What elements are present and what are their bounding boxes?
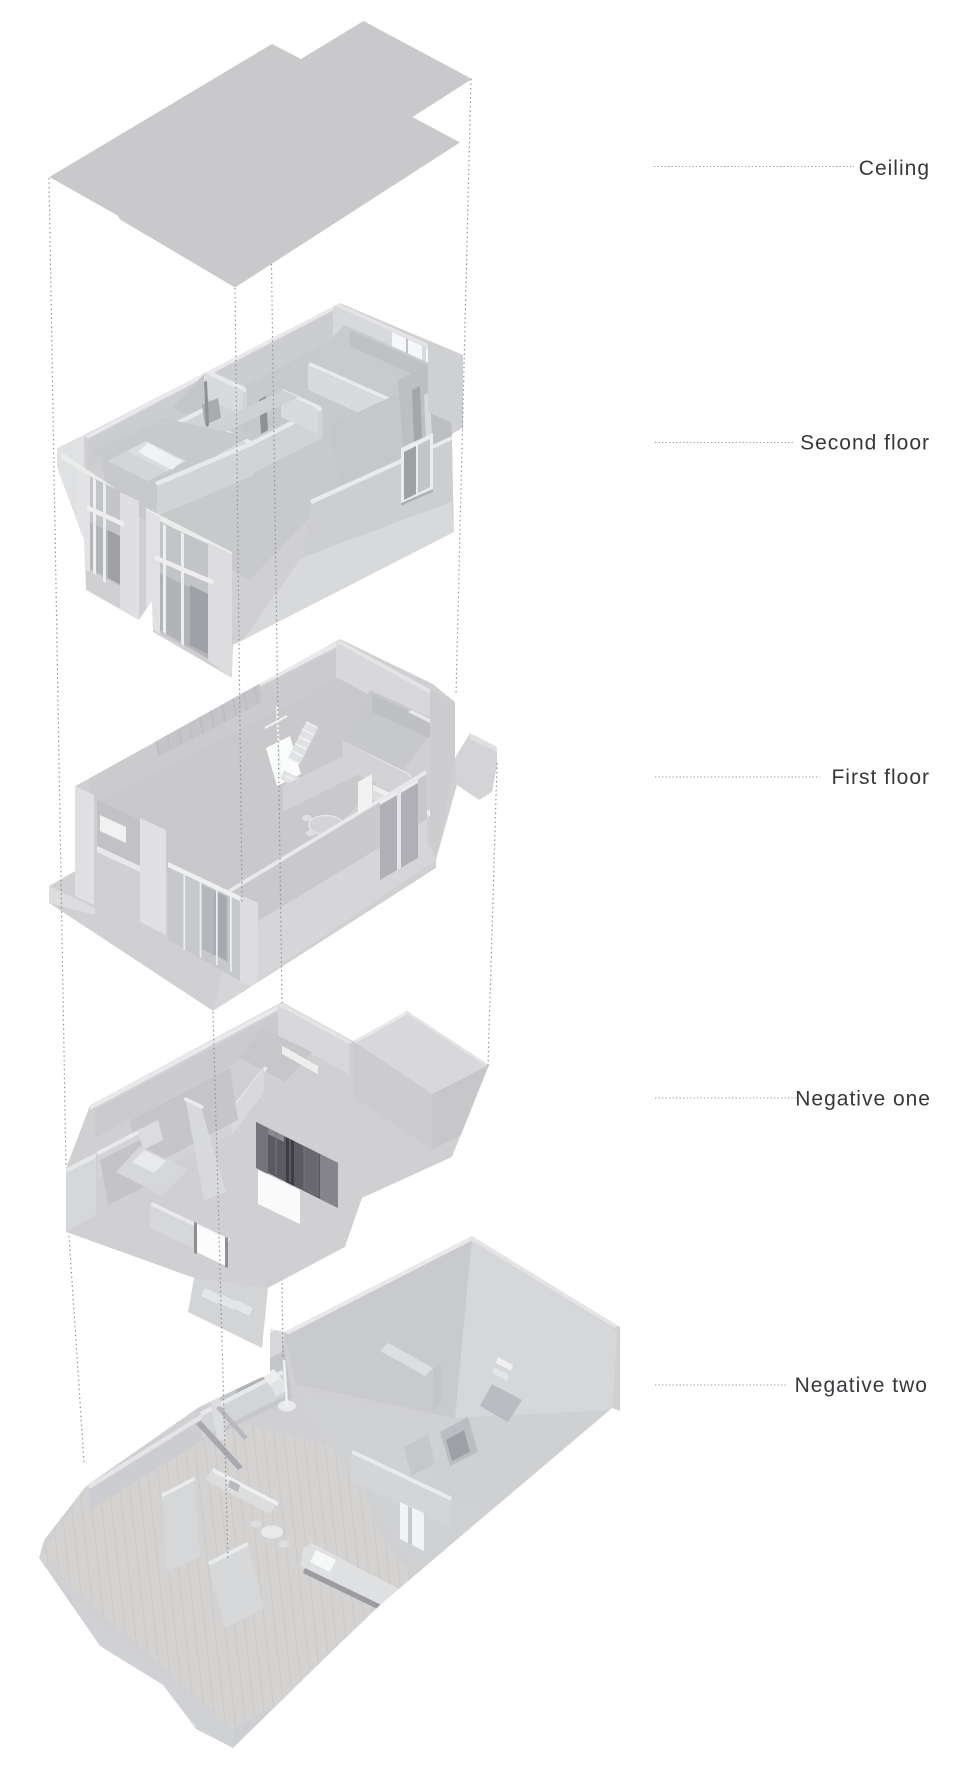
svg-text:Negative one: Negative one xyxy=(795,1087,931,1110)
svg-text:Second floor: Second floor xyxy=(800,432,930,455)
svg-text:First floor: First floor xyxy=(831,766,930,789)
svg-text:Negative two: Negative two xyxy=(795,1374,928,1397)
svg-text:Ceiling: Ceiling xyxy=(859,157,930,180)
